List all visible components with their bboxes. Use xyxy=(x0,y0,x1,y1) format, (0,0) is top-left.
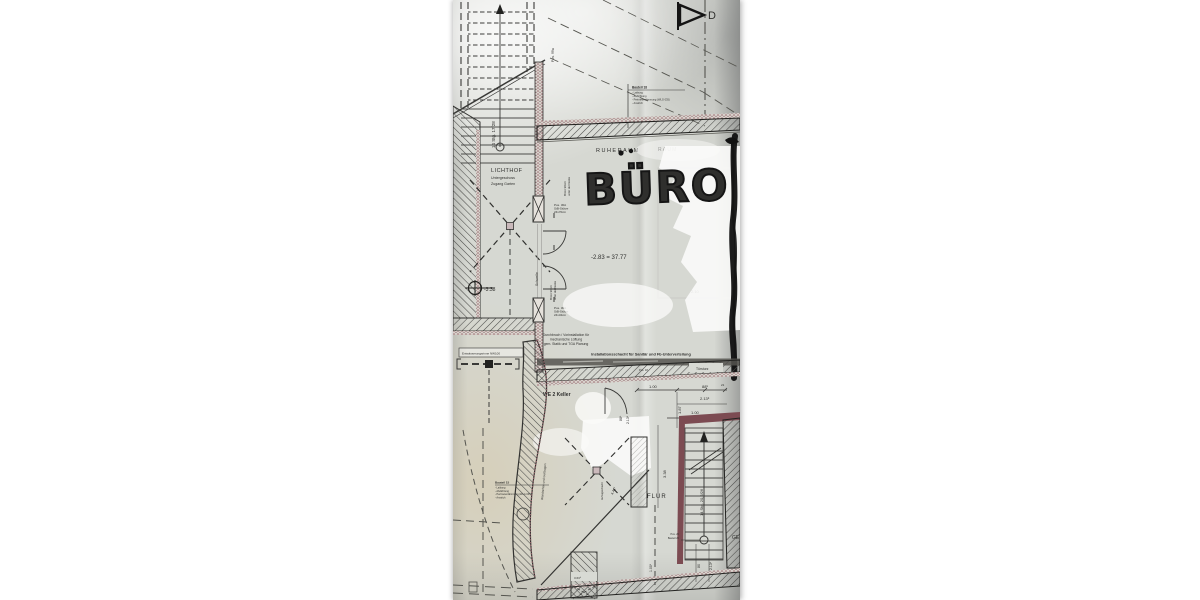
flur-label: FLUR xyxy=(647,494,667,500)
screenshot-canvas: 14 Stg. 17/28 Pos. 99a D Bauteil 18 xyxy=(0,0,1200,600)
cellar-stair xyxy=(677,412,740,568)
floorplan-photo: 14 Stg. 17/28 Pos. 99a D Bauteil 18 xyxy=(453,0,740,600)
drainage-label: Entwässerungsrinne NW100 xyxy=(462,352,500,356)
bauteil15-l4: - Anstrich xyxy=(495,496,506,499)
tuersturz-label: Türsturz xyxy=(696,367,709,371)
left-wall xyxy=(533,62,566,372)
lichthof-label: LICHTHOF xyxy=(491,168,523,174)
brh-note-2a: BrHö 90cm xyxy=(549,284,553,300)
bauteil18-title: Bauteil 18 xyxy=(632,86,647,90)
dim-88: 88⁵ xyxy=(702,384,708,389)
dim-26: 26 xyxy=(607,378,611,382)
dim-441: 4.41⁵ xyxy=(610,486,617,496)
dim-338: 3.38 xyxy=(662,469,667,478)
column-bottom-l3: 24x34cm xyxy=(554,313,567,317)
dim-100c: 1.00⁵ xyxy=(649,563,653,572)
bauteil18-l3: - Perimeterdämmung (WLG 035) xyxy=(632,98,670,102)
bauteil18-l1: - Laibung xyxy=(632,91,643,95)
brh-note-1b: unter der Decke xyxy=(567,176,571,196)
dim-213a: 2.13⁵ xyxy=(700,396,710,401)
wall-pillar xyxy=(631,437,647,507)
dim-100b: 1.00 xyxy=(691,410,700,415)
top-wall xyxy=(537,113,740,142)
dim-80: 80 xyxy=(697,564,701,568)
drain-symbol-icon xyxy=(485,360,493,368)
brh-note-1a: BrHö 90cm xyxy=(563,180,567,196)
bauteil18-l4: - Anstrich xyxy=(632,101,643,105)
curved-wall xyxy=(513,340,547,582)
bauteil20-label: Bauteil 20 xyxy=(668,537,680,540)
cellar-stair-label: 14 Stg. 20,2/26 xyxy=(699,488,704,516)
ruheraum-label: RUHERAUM xyxy=(596,148,640,154)
dim-100a: 1.00 xyxy=(649,384,658,389)
outdoor-stair-label: 14 Stg. 17/28 xyxy=(491,121,496,148)
lichthof-sub2: Zugang Garten xyxy=(491,182,515,186)
section-flag-icon xyxy=(680,5,704,25)
bauteil15-title: Bauteil 15 xyxy=(495,481,510,485)
dim-213b: 2.13⁵ xyxy=(709,561,713,570)
dim-21: 21 xyxy=(721,383,725,387)
door-swing-arc xyxy=(543,231,566,254)
lichthof-sub1: Untergeschoss xyxy=(491,176,515,180)
dim-363: 3.63⁵ xyxy=(574,576,582,580)
lichthof-level: -3.38 xyxy=(484,287,496,293)
drainage-note: Entwässerungsrinne NW100 xyxy=(457,348,523,426)
section-marker: D xyxy=(678,2,716,30)
buero-level: -2.83 = 37.77 xyxy=(591,255,627,261)
durchbruch-l2: mechanische Lüftung xyxy=(550,338,582,342)
pos20-label: Pos. 20 xyxy=(671,533,680,536)
floorplan-drawing: 14 Stg. 17/28 Pos. 99a D Bauteil 18 xyxy=(453,0,740,600)
shaft-note: Aufzugsschacht xyxy=(601,482,604,500)
dim-213c: 2.13⁵ xyxy=(626,415,630,424)
schwelle-label: Schwelle xyxy=(535,272,539,286)
durchbruch-l1: Durchbruch / Vorinstallation für xyxy=(543,333,590,337)
bauteil18-l2: - Abdichtung xyxy=(632,94,647,98)
buero-handwritten-label: BÜRO xyxy=(583,160,730,216)
ge-label: GE xyxy=(732,535,740,541)
column-top-l3: 24x70cm xyxy=(554,210,567,214)
durchbruch-l3: gem. Statik und TGA Planung xyxy=(544,342,589,346)
pos18-label: Pos. 18 xyxy=(639,368,648,372)
section-marker-letter: D xyxy=(708,10,716,22)
dim-88b: 88⁵ xyxy=(619,415,623,421)
wall-note: Wandachse und Gurtbogen xyxy=(540,463,547,500)
schacht-note: Installationsschacht für Sanitär und Fb-… xyxy=(591,353,691,357)
dim-187: 1.87 xyxy=(677,405,682,414)
brh-note-2b: unter der Decke xyxy=(553,280,557,300)
